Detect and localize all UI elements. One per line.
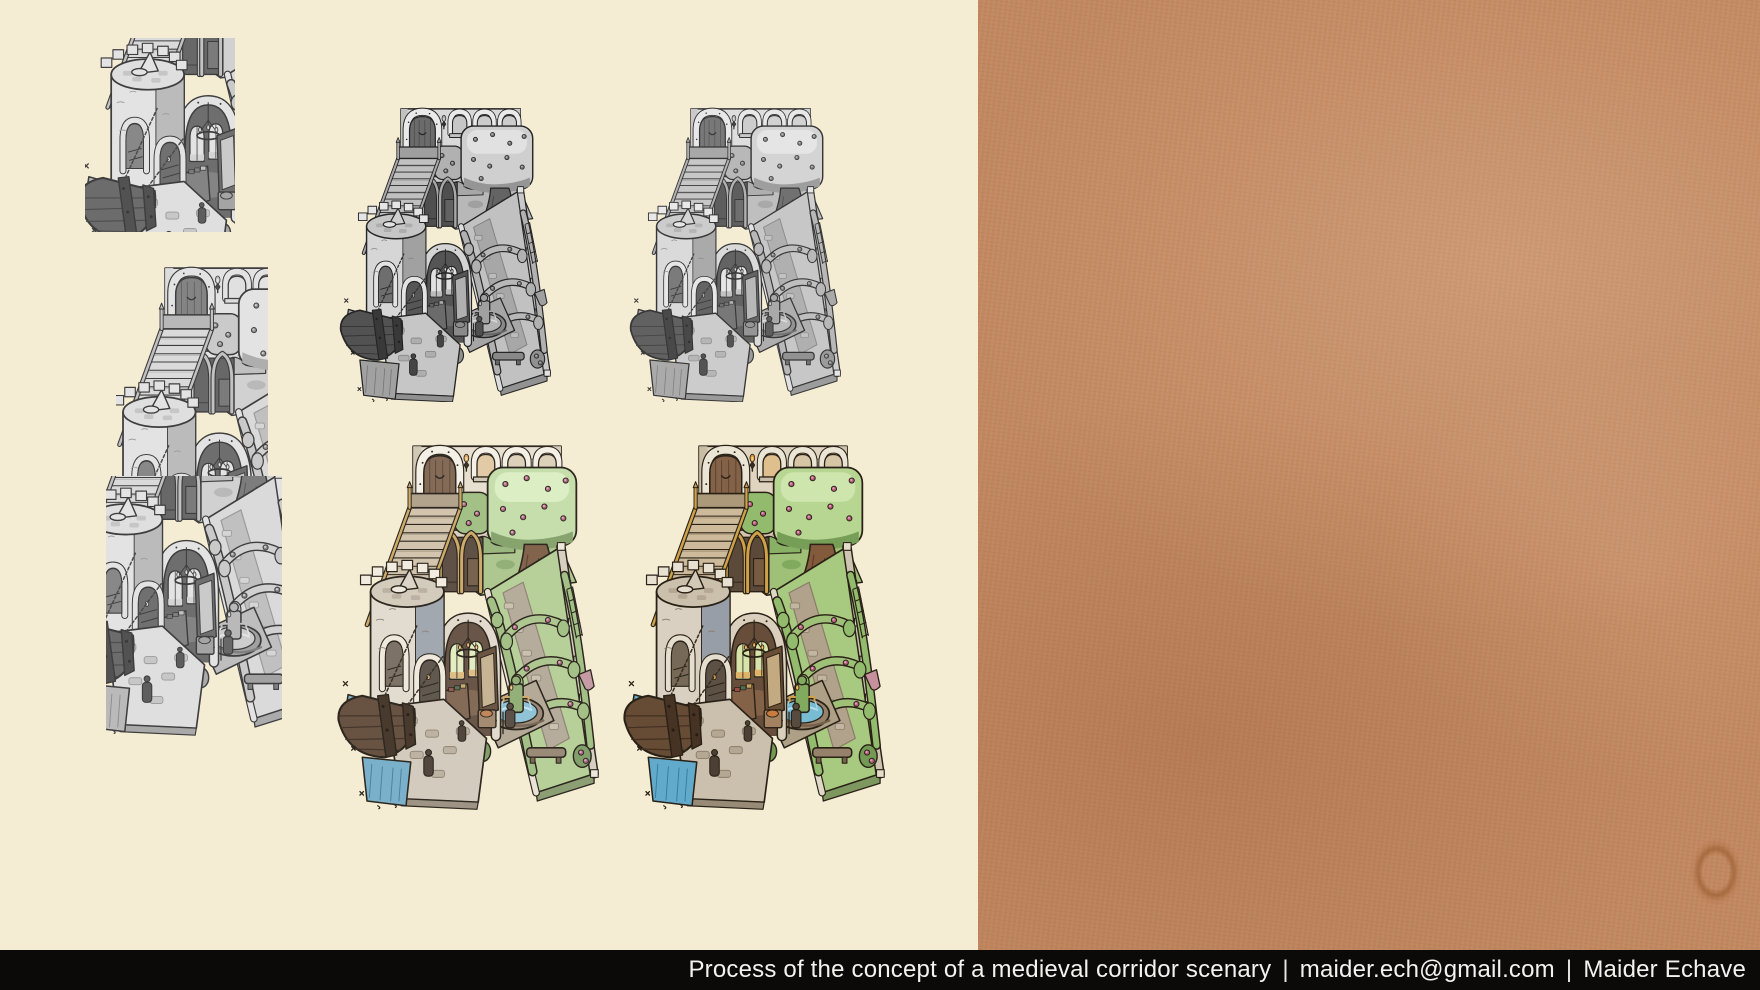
sketch-1-canvas (85, 38, 235, 232)
color-1-canvas (328, 430, 600, 822)
sketch-2-canvas (116, 250, 268, 478)
value-2-canvas (612, 106, 852, 402)
caption-email: maider.ech@gmail.com (1300, 956, 1555, 984)
color-2-canvas (614, 430, 886, 822)
grayscale-value-study-2 (612, 106, 852, 402)
color-study-1 (328, 430, 600, 822)
sketch-thumbnail-1 (85, 38, 235, 232)
caption-separator-1: | (1282, 956, 1288, 984)
paper-stain (1690, 838, 1742, 906)
caption-process-text: Process of the concept of a medieval cor… (688, 956, 1271, 984)
color-study-2 (614, 430, 886, 822)
caption-author: Maider Echave (1583, 956, 1746, 984)
value-1-canvas (322, 106, 562, 402)
grayscale-value-study-1 (322, 106, 562, 402)
concept-art-process-sheet: Process of the concept of a medieval cor… (0, 0, 1760, 990)
sketch-3-canvas (106, 476, 282, 748)
sketch-thumbnail-2 (116, 250, 268, 478)
caption-bar: Process of the concept of a medieval cor… (0, 950, 1760, 990)
final-artwork-panel (978, 0, 1760, 950)
process-steps-panel (0, 0, 978, 950)
sketch-thumbnail-3 (106, 476, 282, 748)
caption-separator-2: | (1566, 956, 1572, 984)
